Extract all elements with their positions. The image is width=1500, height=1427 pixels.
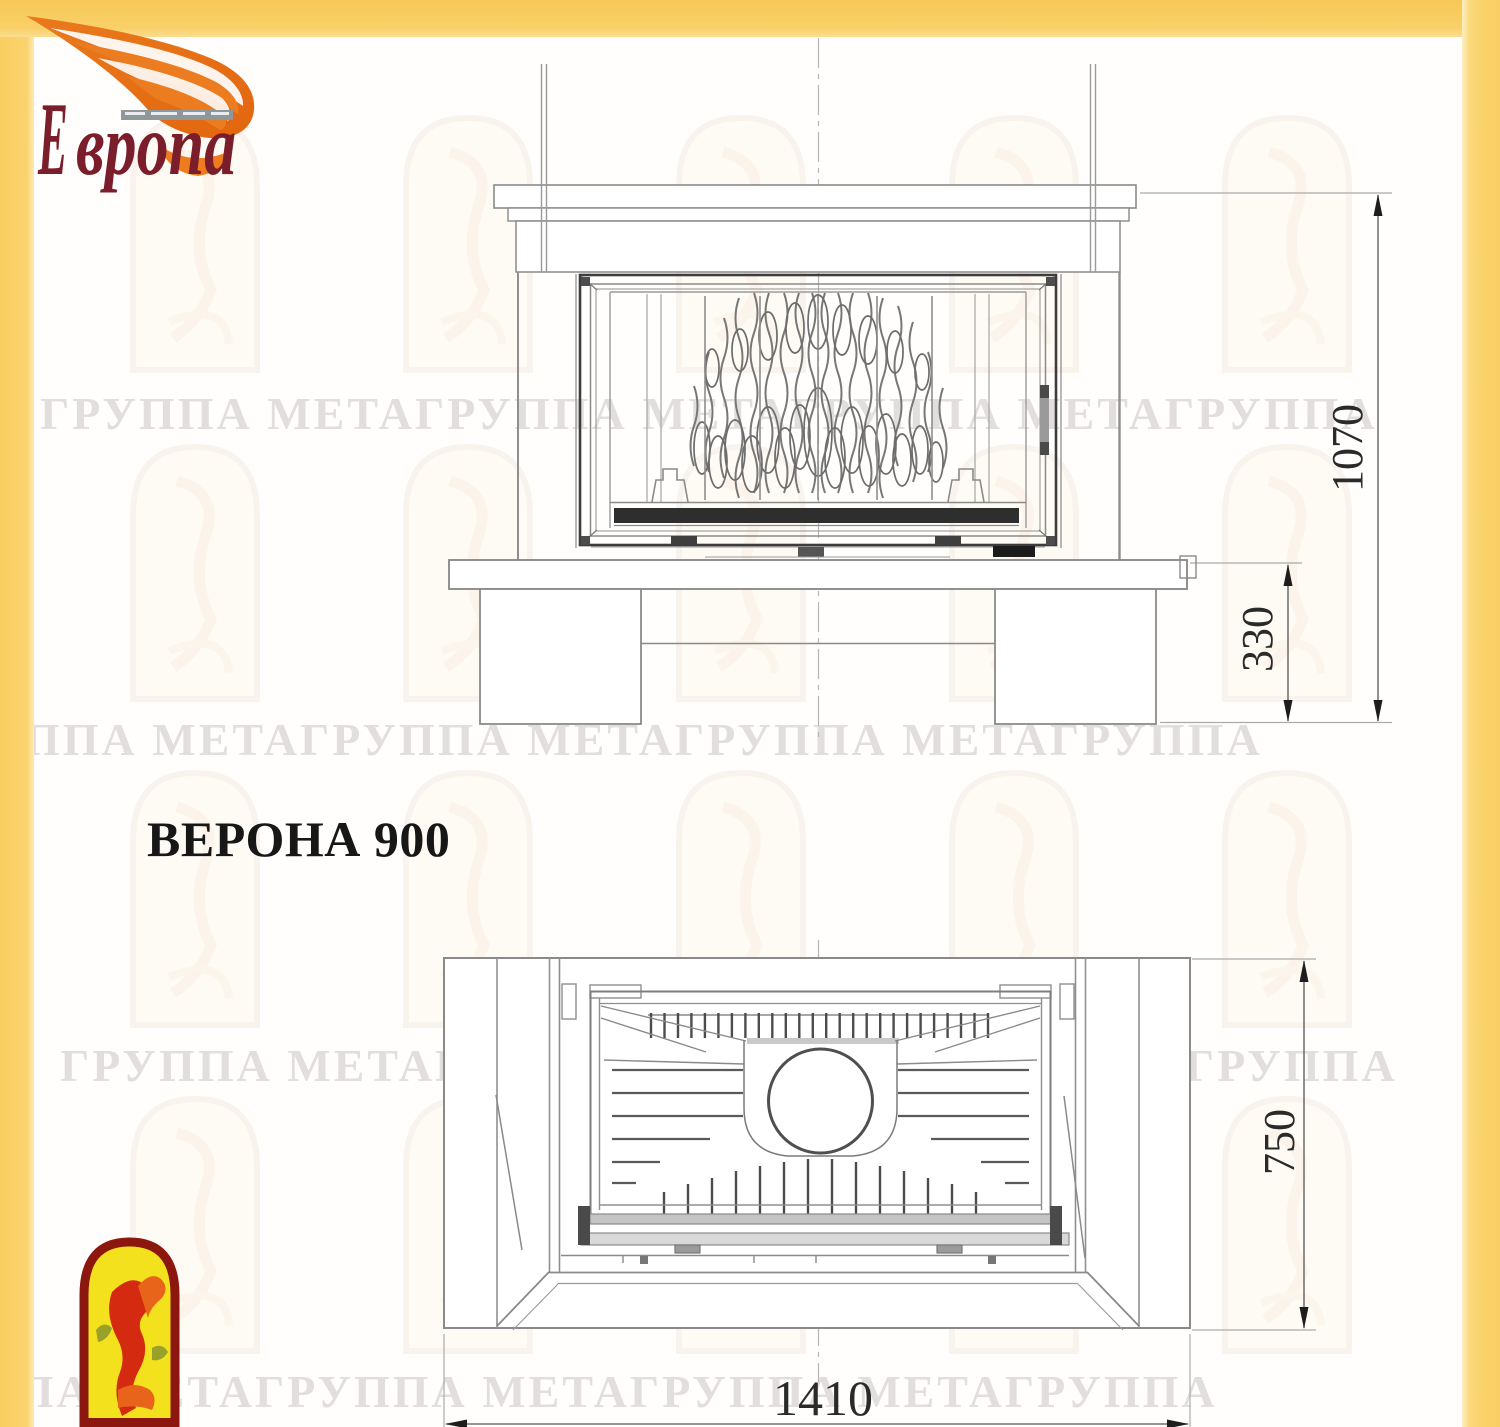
- svg-text:330: 330: [1233, 606, 1282, 672]
- svg-text:ГРУППА МЕТАГРУППА МЕТАГРУППА М: ГРУППА МЕТАГРУППА МЕТАГРУППА МЕТАГРУППА: [0, 1366, 1218, 1417]
- svg-text:вропа: вропа: [76, 98, 236, 193]
- svg-text:1410: 1410: [773, 1370, 873, 1426]
- svg-text:ВЕРОНА 900: ВЕРОНА 900: [147, 811, 450, 867]
- svg-text:Е: Е: [37, 82, 67, 198]
- svg-text:1070: 1070: [1323, 404, 1372, 492]
- svg-text:750: 750: [1255, 1109, 1304, 1175]
